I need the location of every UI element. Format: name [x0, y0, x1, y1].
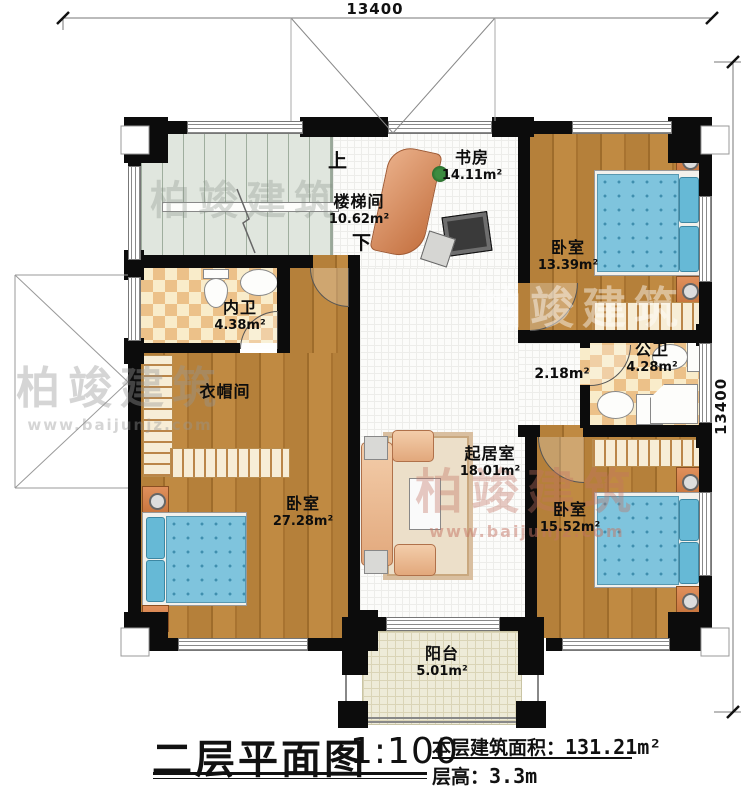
roof-left-line	[15, 382, 128, 488]
room-name: 内卫	[202, 298, 278, 318]
annotation-lines	[0, 0, 750, 786]
floor-area-label: 本层建筑面积：	[432, 737, 565, 759]
room-label-closet: 衣帽间	[182, 382, 268, 402]
dimension-right: 13400	[712, 345, 730, 435]
room-name: 起居室	[443, 444, 537, 464]
room-name: 公卫	[612, 340, 692, 360]
floor-area-line: 本层建筑面积：131.21m²	[432, 733, 661, 760]
corner-sill	[121, 126, 149, 154]
room-label-bedroom-se: 卧室 15.52m²	[522, 500, 618, 536]
dimension-top: 13400	[340, 0, 410, 18]
room-name: 卧室	[256, 494, 350, 514]
floor-height-label: 层高：	[432, 766, 489, 786]
room-label-public-bath: 公卫 4.28m²	[612, 340, 692, 376]
room-label-bedroom-sw: 卧室 27.28m²	[256, 494, 350, 530]
room-area: 5.01m²	[398, 664, 486, 680]
room-area: 13.39m²	[526, 258, 610, 274]
corner-sill	[701, 628, 729, 656]
room-label-balcony: 阳台 5.01m²	[398, 644, 486, 680]
room-label-inner-bath: 内卫 4.38m²	[202, 298, 278, 334]
stair-down-label: 下	[352, 228, 371, 255]
stair-up-label: 上	[328, 146, 347, 173]
room-area: 18.01m²	[443, 464, 537, 480]
room-label-study: 书房 14.11m²	[428, 148, 516, 184]
room-label-hallway: 2.18m²	[524, 366, 600, 384]
room-name: 卧室	[522, 500, 618, 520]
room-area: 27.28m²	[256, 514, 350, 530]
floor-plan-canvas: 柏竣建筑 柏竣建筑 www.baijunjz.com 柏竣建筑 柏竣建筑 www…	[0, 0, 750, 786]
roof-gable-line	[393, 18, 495, 133]
room-area: 10.62m²	[318, 212, 400, 228]
roof-gable-line	[291, 18, 393, 133]
room-name: 楼梯间	[318, 192, 400, 212]
floor-area-value: 131.21m²	[565, 735, 661, 759]
floor-height-value: 3.3m	[489, 764, 537, 786]
room-label-living: 起居室 18.01m²	[443, 444, 537, 480]
room-name: 书房	[428, 148, 516, 168]
footer-divider	[432, 757, 632, 759]
corner-sill	[701, 126, 729, 154]
room-area: 15.52m²	[522, 520, 618, 536]
room-area: 4.28m²	[612, 360, 692, 376]
room-area: 14.11m²	[428, 168, 516, 184]
room-area: 4.38m²	[202, 318, 278, 334]
corner-sill	[121, 628, 149, 656]
room-label-bedroom-ne: 卧室 13.39m²	[526, 238, 610, 274]
title-underline	[153, 772, 427, 775]
floor-height-line: 层高：3.3m	[432, 762, 537, 786]
room-name: 卧室	[526, 238, 610, 258]
room-name: 阳台	[398, 644, 486, 664]
title-underline-thin	[153, 778, 427, 779]
plan-title: 二层平面图	[152, 727, 367, 785]
room-label-stairwell: 楼梯间 10.62m²	[318, 192, 400, 228]
room-name: 衣帽间	[182, 382, 268, 402]
roof-left-line	[15, 275, 128, 382]
room-area: 2.18m²	[524, 366, 600, 384]
stair-break-line	[237, 189, 255, 253]
